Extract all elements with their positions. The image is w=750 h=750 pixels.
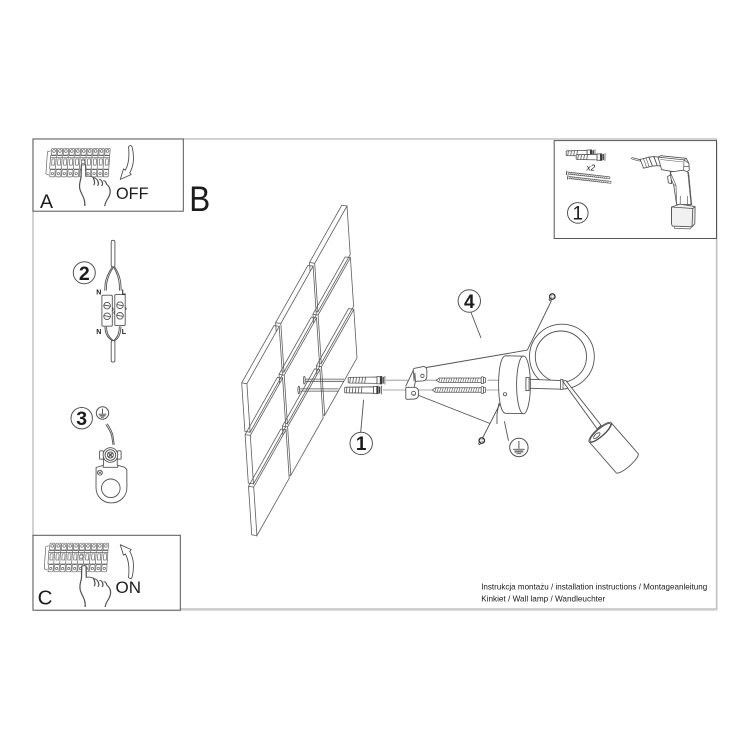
svg-text:N: N <box>96 329 101 336</box>
svg-text:OFF: OFF <box>116 185 149 203</box>
svg-text:1: 1 <box>356 434 367 455</box>
svg-text:Kinkiet / Wall lamp / Wandleuc: Kinkiet / Wall lamp / Wandleuchter <box>481 594 605 604</box>
svg-text:L: L <box>122 329 127 336</box>
svg-text:B: B <box>189 180 210 219</box>
svg-text:ON: ON <box>116 579 142 597</box>
svg-text:1: 1 <box>573 204 584 225</box>
svg-text:A: A <box>40 191 53 213</box>
svg-text:N: N <box>96 290 101 297</box>
svg-text:4: 4 <box>464 292 475 313</box>
svg-text:Instrukcja montażu / installat: Instrukcja montażu / installation instru… <box>481 582 707 592</box>
svg-text:C: C <box>38 587 53 610</box>
svg-text:L: L <box>122 290 127 297</box>
svg-text:3: 3 <box>76 408 87 430</box>
svg-text:x2: x2 <box>586 164 596 173</box>
svg-text:2: 2 <box>79 263 90 285</box>
